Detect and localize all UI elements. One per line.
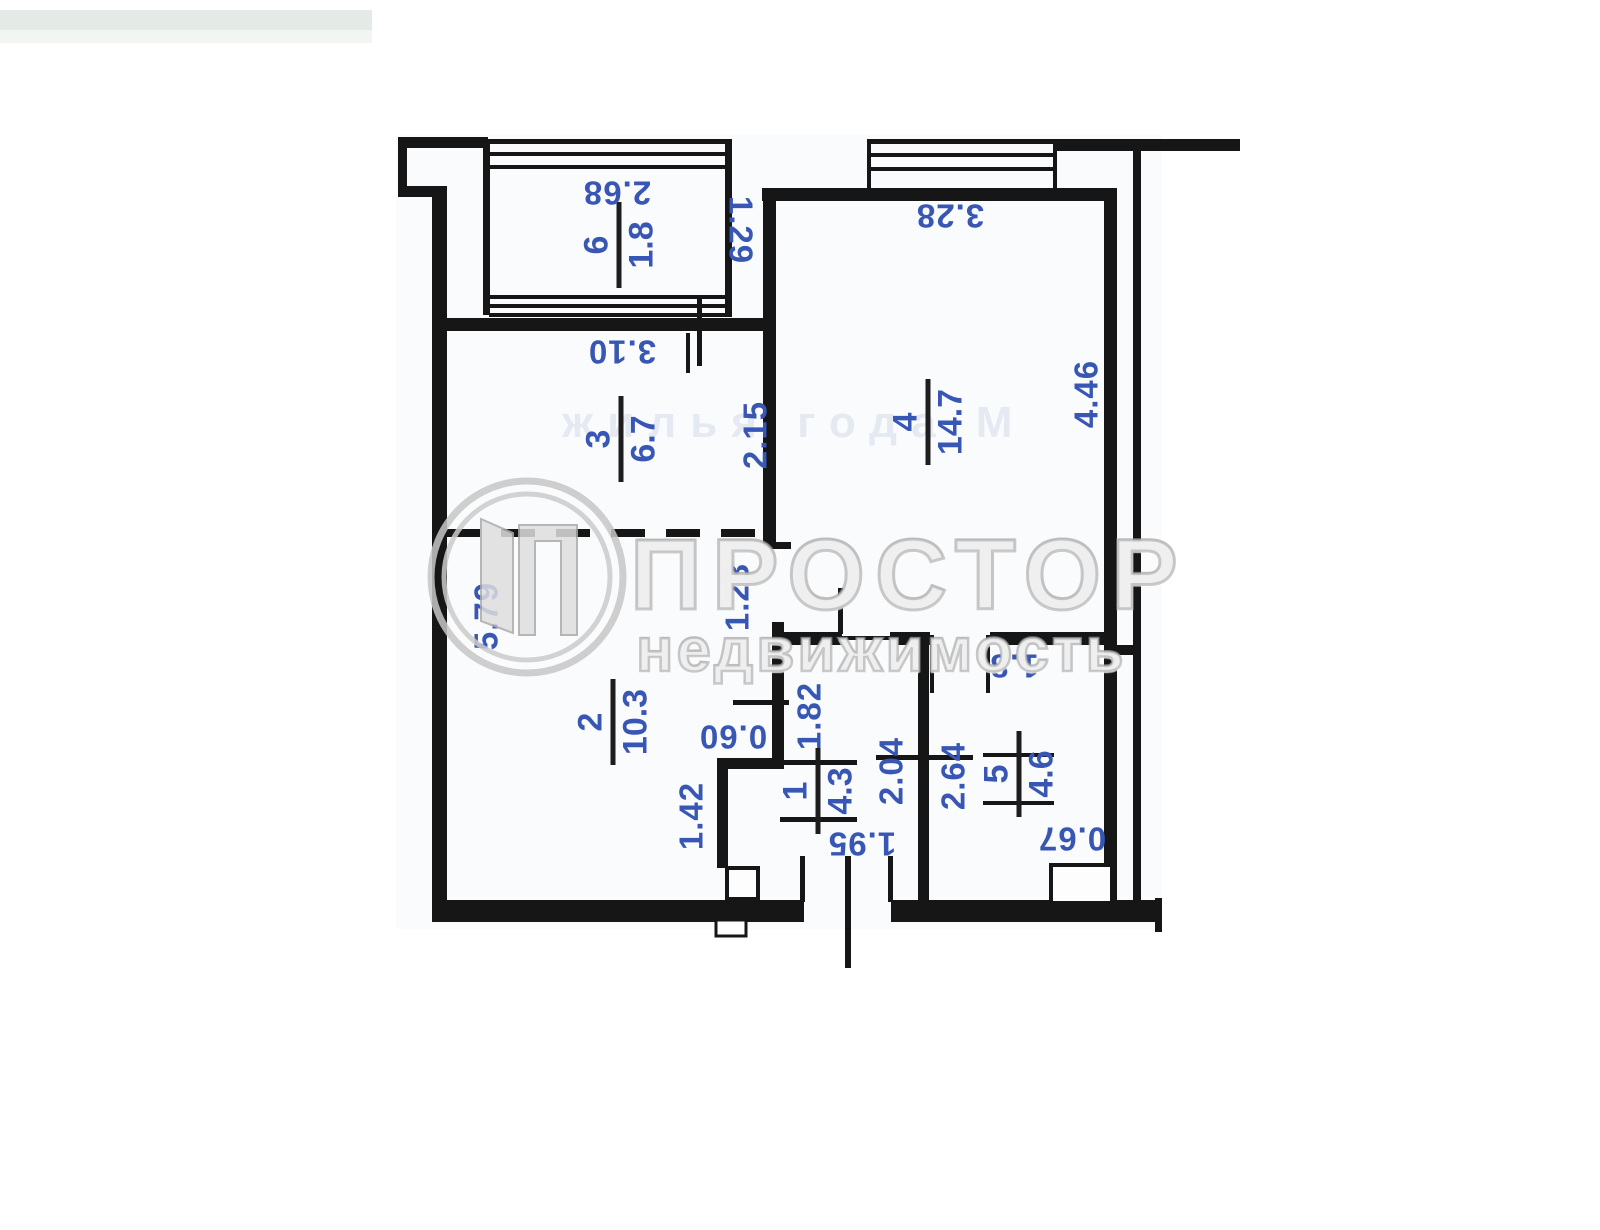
fraction-rule <box>816 748 821 834</box>
room-number: 3 <box>582 430 616 449</box>
dimension-3-28: 3.28 <box>916 200 984 233</box>
dimension-4-46: 4.46 <box>1070 360 1103 428</box>
room-area: 6.7 <box>627 415 661 462</box>
dimension-2-68: 2.68 <box>583 177 651 210</box>
room-label-1: 1 4.3 <box>779 752 858 830</box>
room-label-2: 2 10.3 <box>574 683 653 761</box>
room-area: 4.3 <box>824 767 858 814</box>
floor-plan-scan: жилья года М <box>0 0 1600 1230</box>
dimension-1-42: 1.42 <box>675 782 708 850</box>
dimension-3-10: 3.10 <box>588 336 656 369</box>
fraction-rule <box>611 679 616 765</box>
dimension-1-29: 1.29 <box>725 196 758 264</box>
room-area: 10.3 <box>619 689 653 755</box>
watermark-door-logo-icon <box>420 470 635 685</box>
fraction-rule <box>1017 731 1022 817</box>
dimension-1-82: 1.82 <box>793 682 826 750</box>
room-label-6-balcony: 6 1.8 <box>580 206 659 284</box>
room-number: 5 <box>980 765 1014 784</box>
room-label-3: 3 6.7 <box>582 400 661 478</box>
dimension-2-15: 2.15 <box>739 401 772 469</box>
fraction-rule <box>617 202 622 288</box>
dimension-1-95: 1.95 <box>828 828 896 861</box>
room-number: 1 <box>779 782 813 801</box>
room-number: 4 <box>889 413 923 432</box>
room-label-5: 5 4.6 <box>980 735 1059 813</box>
dimension-0-67: 0.67 <box>1038 823 1106 856</box>
room-area: 14.7 <box>934 389 968 455</box>
room-number: 2 <box>574 713 608 732</box>
room-area: 1.8 <box>625 221 659 268</box>
room-label-4: 4 14.7 <box>889 383 968 461</box>
fraction-rule <box>926 379 931 465</box>
dimension-0-60: 0.60 <box>699 721 767 754</box>
watermark-brand-text: ПРОСТОР <box>630 523 1188 628</box>
dimension-2-04: 2.04 <box>875 737 908 805</box>
watermark-subtitle-text: недвижимость <box>636 615 1127 686</box>
dimension-2-64: 2.64 <box>937 742 970 810</box>
room-number: 6 <box>580 236 614 255</box>
room-area: 4.6 <box>1025 750 1059 797</box>
